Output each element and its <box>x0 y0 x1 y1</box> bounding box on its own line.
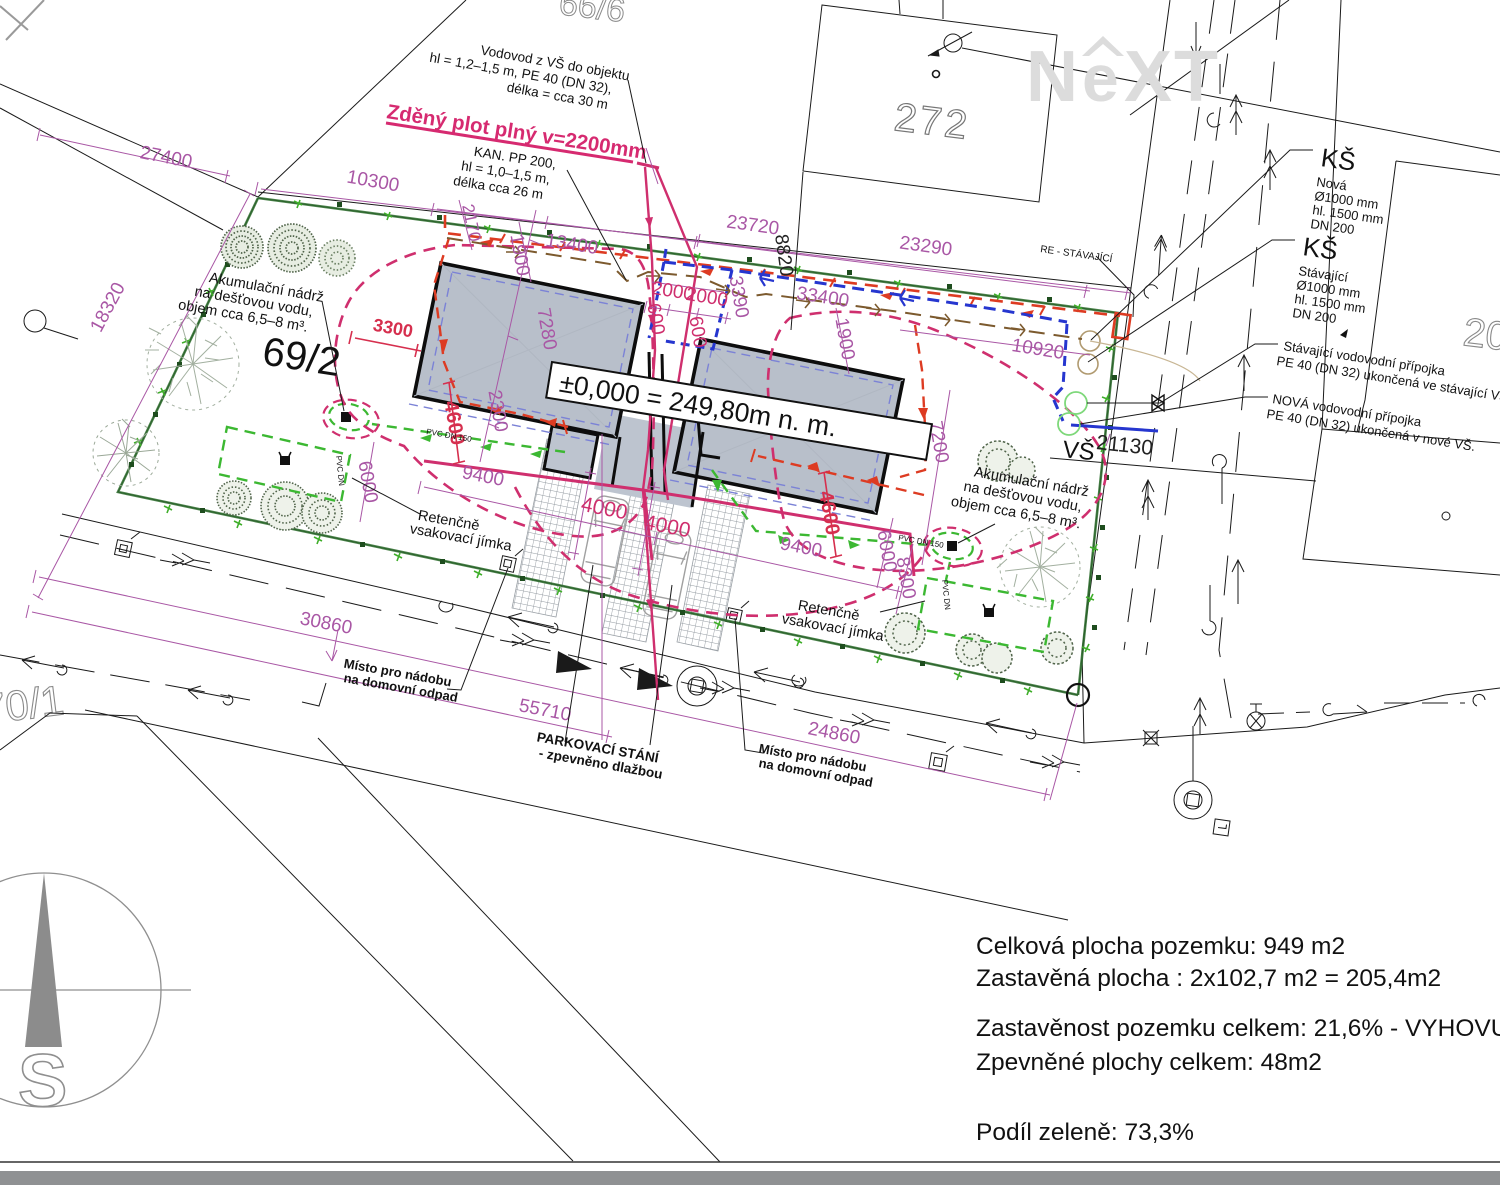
svg-text:272: 272 <box>892 95 973 148</box>
svg-text:N: N <box>1026 37 1080 117</box>
svg-text:Zpevněné plochy celkem: 48m2: Zpevněné plochy celkem: 48m2 <box>976 1049 1322 1076</box>
svg-text:Celková plocha pozemku: 949 m2: Celková plocha pozemku: 949 m2 <box>976 933 1345 960</box>
svg-text:XT: XT <box>1124 37 1220 117</box>
svg-text:KŠ: KŠ <box>1319 142 1358 177</box>
svg-text:202: 202 <box>1461 310 1500 362</box>
svg-text:KŠ: KŠ <box>1301 231 1340 266</box>
svg-text:Podíl zeleně: 73,3%: Podíl zeleně: 73,3% <box>976 1119 1194 1146</box>
svg-text:Zastavěnost pozemku celkem: 21: Zastavěnost pozemku celkem: 21,6% - VYHO… <box>976 1015 1500 1042</box>
svg-text:VŠ: VŠ <box>1061 435 1096 466</box>
svg-text:S: S <box>18 1039 67 1122</box>
svg-text:Zastavěná plocha : 2x102,7 m2: Zastavěná plocha : 2x102,7 m2 = 205,4m2 <box>976 965 1441 992</box>
